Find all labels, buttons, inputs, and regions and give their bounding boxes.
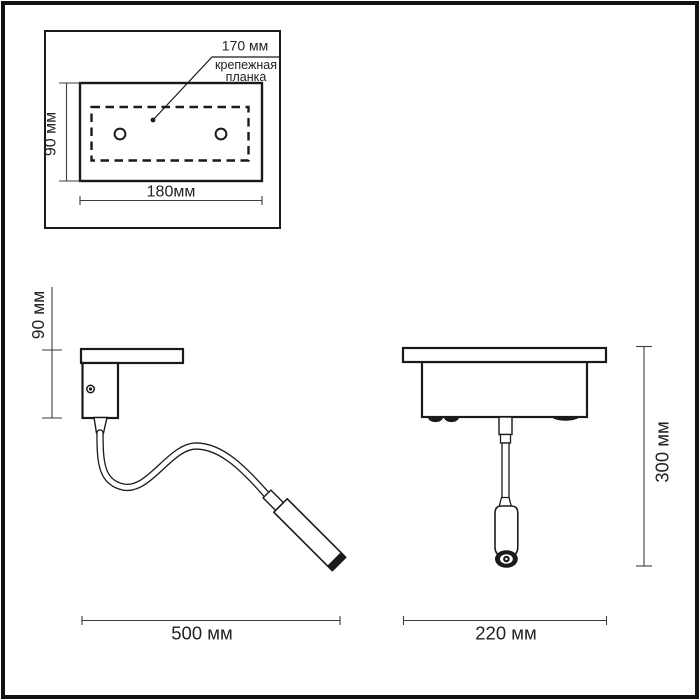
lens-center-dot bbox=[505, 558, 507, 560]
bracket-name-label: крепежная планка bbox=[215, 59, 277, 83]
front-width-label: 220 мм bbox=[475, 623, 536, 642]
inset-width-label: 180мм bbox=[147, 185, 196, 202]
bracket-length-label: 170 мм bbox=[222, 39, 269, 54]
technical-drawing-canvas bbox=[0, 0, 700, 700]
lamp-body-front bbox=[422, 362, 587, 417]
gooseneck-base-connector-front bbox=[499, 417, 512, 435]
wall-plate-side bbox=[81, 349, 183, 363]
front-view bbox=[403, 347, 652, 626]
wall-plate-front bbox=[403, 348, 606, 362]
front-height-dimension bbox=[636, 347, 652, 567]
gooseneck-tube-front bbox=[502, 443, 509, 498]
side-height-label: 90 мм bbox=[29, 291, 47, 339]
lamp-head-front bbox=[495, 506, 518, 557]
side-width-label: 500 мм bbox=[171, 623, 232, 642]
inset-height-dimension bbox=[59, 83, 81, 181]
bracket-name-line2: планка bbox=[215, 71, 277, 83]
inset-height-label: 90 мм bbox=[44, 112, 61, 156]
switch-knob-dot bbox=[89, 387, 92, 390]
mounting-plate-outline bbox=[80, 83, 262, 181]
gooseneck-joint-front bbox=[501, 435, 511, 444]
dimension-drawing: 170 мм крепежная планка 90 мм 180мм 90 м… bbox=[0, 0, 700, 700]
side-view bbox=[42, 287, 346, 625]
front-height-label: 300 мм bbox=[652, 421, 671, 482]
